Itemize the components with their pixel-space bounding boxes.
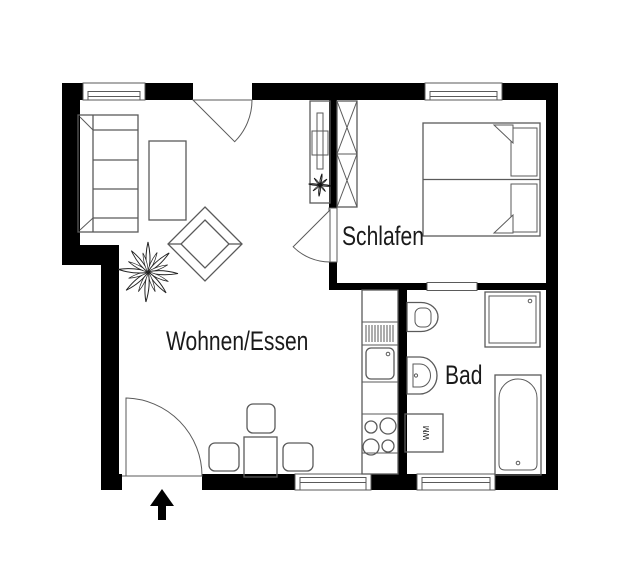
pillow: [511, 128, 537, 176]
blanket-fold: [494, 215, 513, 233]
wall-bedroom-bath: [477, 283, 546, 290]
entrance-door-swing-arc: [126, 398, 202, 476]
dining-set: [209, 404, 313, 477]
double-bed: [423, 123, 540, 236]
blanket-fold: [494, 125, 513, 143]
coffee-table: [149, 141, 186, 220]
bedroom-furniture: [337, 101, 540, 236]
pillow: [511, 184, 537, 232]
tv-sideboard: [309, 101, 332, 203]
tv-stand: [312, 131, 328, 155]
dining-chair: [247, 404, 275, 433]
sink-drainer: [366, 325, 393, 342]
wall-left-upper: [62, 83, 80, 248]
bedroom-door: [293, 208, 337, 262]
window-bottom-living: [295, 474, 371, 490]
wall-bottom: [101, 474, 122, 490]
terrace-door-swing-arc: [193, 100, 252, 142]
wardrobe: [337, 101, 357, 207]
window-top-right: [425, 83, 502, 100]
bathroom-door-opening: [427, 283, 477, 291]
armchair: [168, 207, 242, 281]
toilet: [407, 303, 438, 332]
floorplan-svg: WM Wohnen/Essen Schlafen Bad: [0, 0, 640, 575]
wall-left-jog: [62, 245, 119, 265]
wall-bedroom-bath: [329, 283, 427, 290]
washbasin: [407, 357, 437, 394]
bathtub: [495, 375, 541, 475]
dining-chair: [283, 443, 313, 471]
wall-top: [252, 83, 425, 100]
entrance-arrow-icon: [150, 489, 174, 520]
plant-large: [118, 242, 178, 302]
washing-machine: WM: [405, 414, 443, 452]
bedroom-door-swing-arc: [293, 210, 330, 262]
bedroom-label: Schlafen: [342, 222, 424, 252]
wall-bottom: [495, 474, 558, 490]
living-dining-label: Wohnen/Essen: [166, 327, 308, 357]
terrace-door: [193, 84, 252, 142]
shower: [485, 292, 540, 347]
window-bottom-bath: [417, 474, 495, 490]
dining-chair: [209, 443, 239, 471]
wall-top: [145, 83, 193, 100]
sofa: [78, 115, 138, 232]
washing-machine-label: WM: [422, 426, 431, 441]
wall-bottom: [371, 474, 417, 490]
bathroom-label: Bad: [445, 361, 482, 391]
tv: [317, 113, 323, 169]
stove: [363, 418, 396, 455]
floorplan-canvas: WM Wohnen/Essen Schlafen Bad: [0, 0, 640, 575]
wall-right: [546, 83, 558, 490]
entrance-door: [122, 398, 202, 490]
kitchen: [362, 290, 398, 474]
dining-table: [244, 437, 277, 477]
window-top-left: [83, 83, 145, 100]
kitchen-sink: [366, 348, 394, 379]
plant-small: [309, 174, 332, 197]
wall-left-lower: [101, 263, 119, 477]
